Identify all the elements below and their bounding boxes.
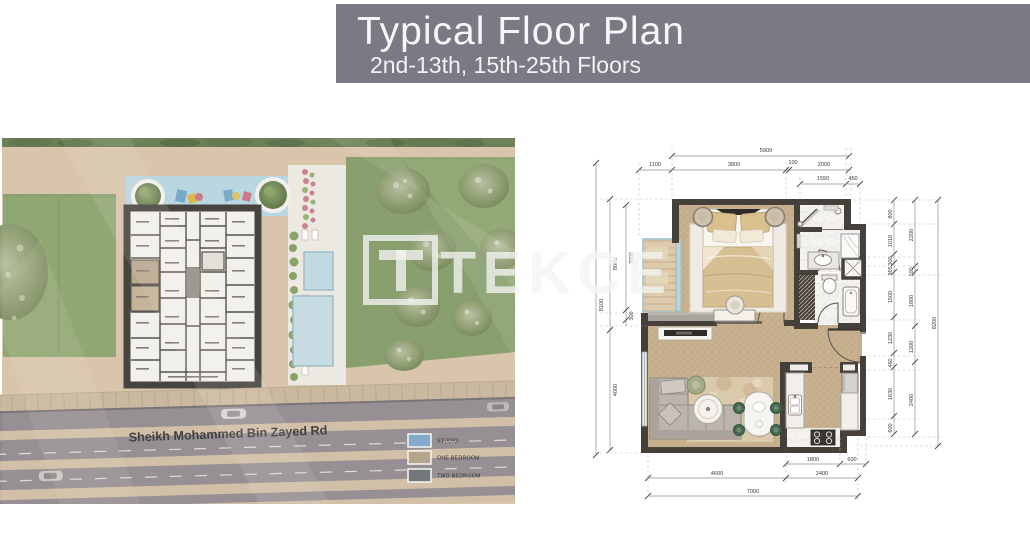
svg-text:ONE BEDROOM: ONE BEDROOM	[437, 456, 480, 462]
svg-text:1630: 1630	[888, 388, 894, 400]
svg-text:STUDIO: STUDIO	[437, 439, 458, 445]
svg-text:5900: 5900	[760, 148, 772, 154]
svg-text:2200: 2200	[909, 229, 915, 241]
svg-text:1230: 1230	[888, 332, 894, 344]
svg-text:TWO BEDROOM: TWO BEDROOM	[437, 474, 481, 480]
svg-text:450: 450	[848, 176, 857, 182]
svg-text:1550: 1550	[817, 176, 829, 182]
svg-text:600: 600	[847, 457, 856, 463]
svg-text:2000: 2000	[818, 162, 830, 168]
svg-text:1200: 1200	[909, 341, 915, 353]
svg-text:100: 100	[909, 267, 915, 276]
svg-text:300: 300	[629, 311, 635, 320]
svg-text:365: 365	[888, 266, 894, 275]
svg-text:4600: 4600	[711, 471, 723, 477]
svg-text:7000: 7000	[747, 489, 759, 495]
svg-text:2400: 2400	[909, 394, 915, 406]
svg-text:4000: 4000	[613, 384, 619, 396]
svg-text:3800: 3800	[728, 162, 740, 168]
svg-text:8200: 8200	[932, 317, 938, 329]
svg-text:1800: 1800	[807, 457, 819, 463]
svg-text:1010: 1010	[888, 235, 894, 247]
svg-text:1100: 1100	[649, 162, 661, 168]
svg-text:460: 460	[888, 358, 894, 367]
svg-text:300: 300	[888, 256, 894, 265]
svg-text:800: 800	[888, 209, 894, 218]
svg-text:2400: 2400	[816, 471, 828, 477]
svg-text:100: 100	[788, 160, 797, 166]
svg-text:1800: 1800	[909, 295, 915, 307]
svg-text:TEKCE: TEKCE	[440, 240, 672, 306]
svg-text:600: 600	[888, 423, 894, 432]
svg-text:1500: 1500	[888, 291, 894, 303]
